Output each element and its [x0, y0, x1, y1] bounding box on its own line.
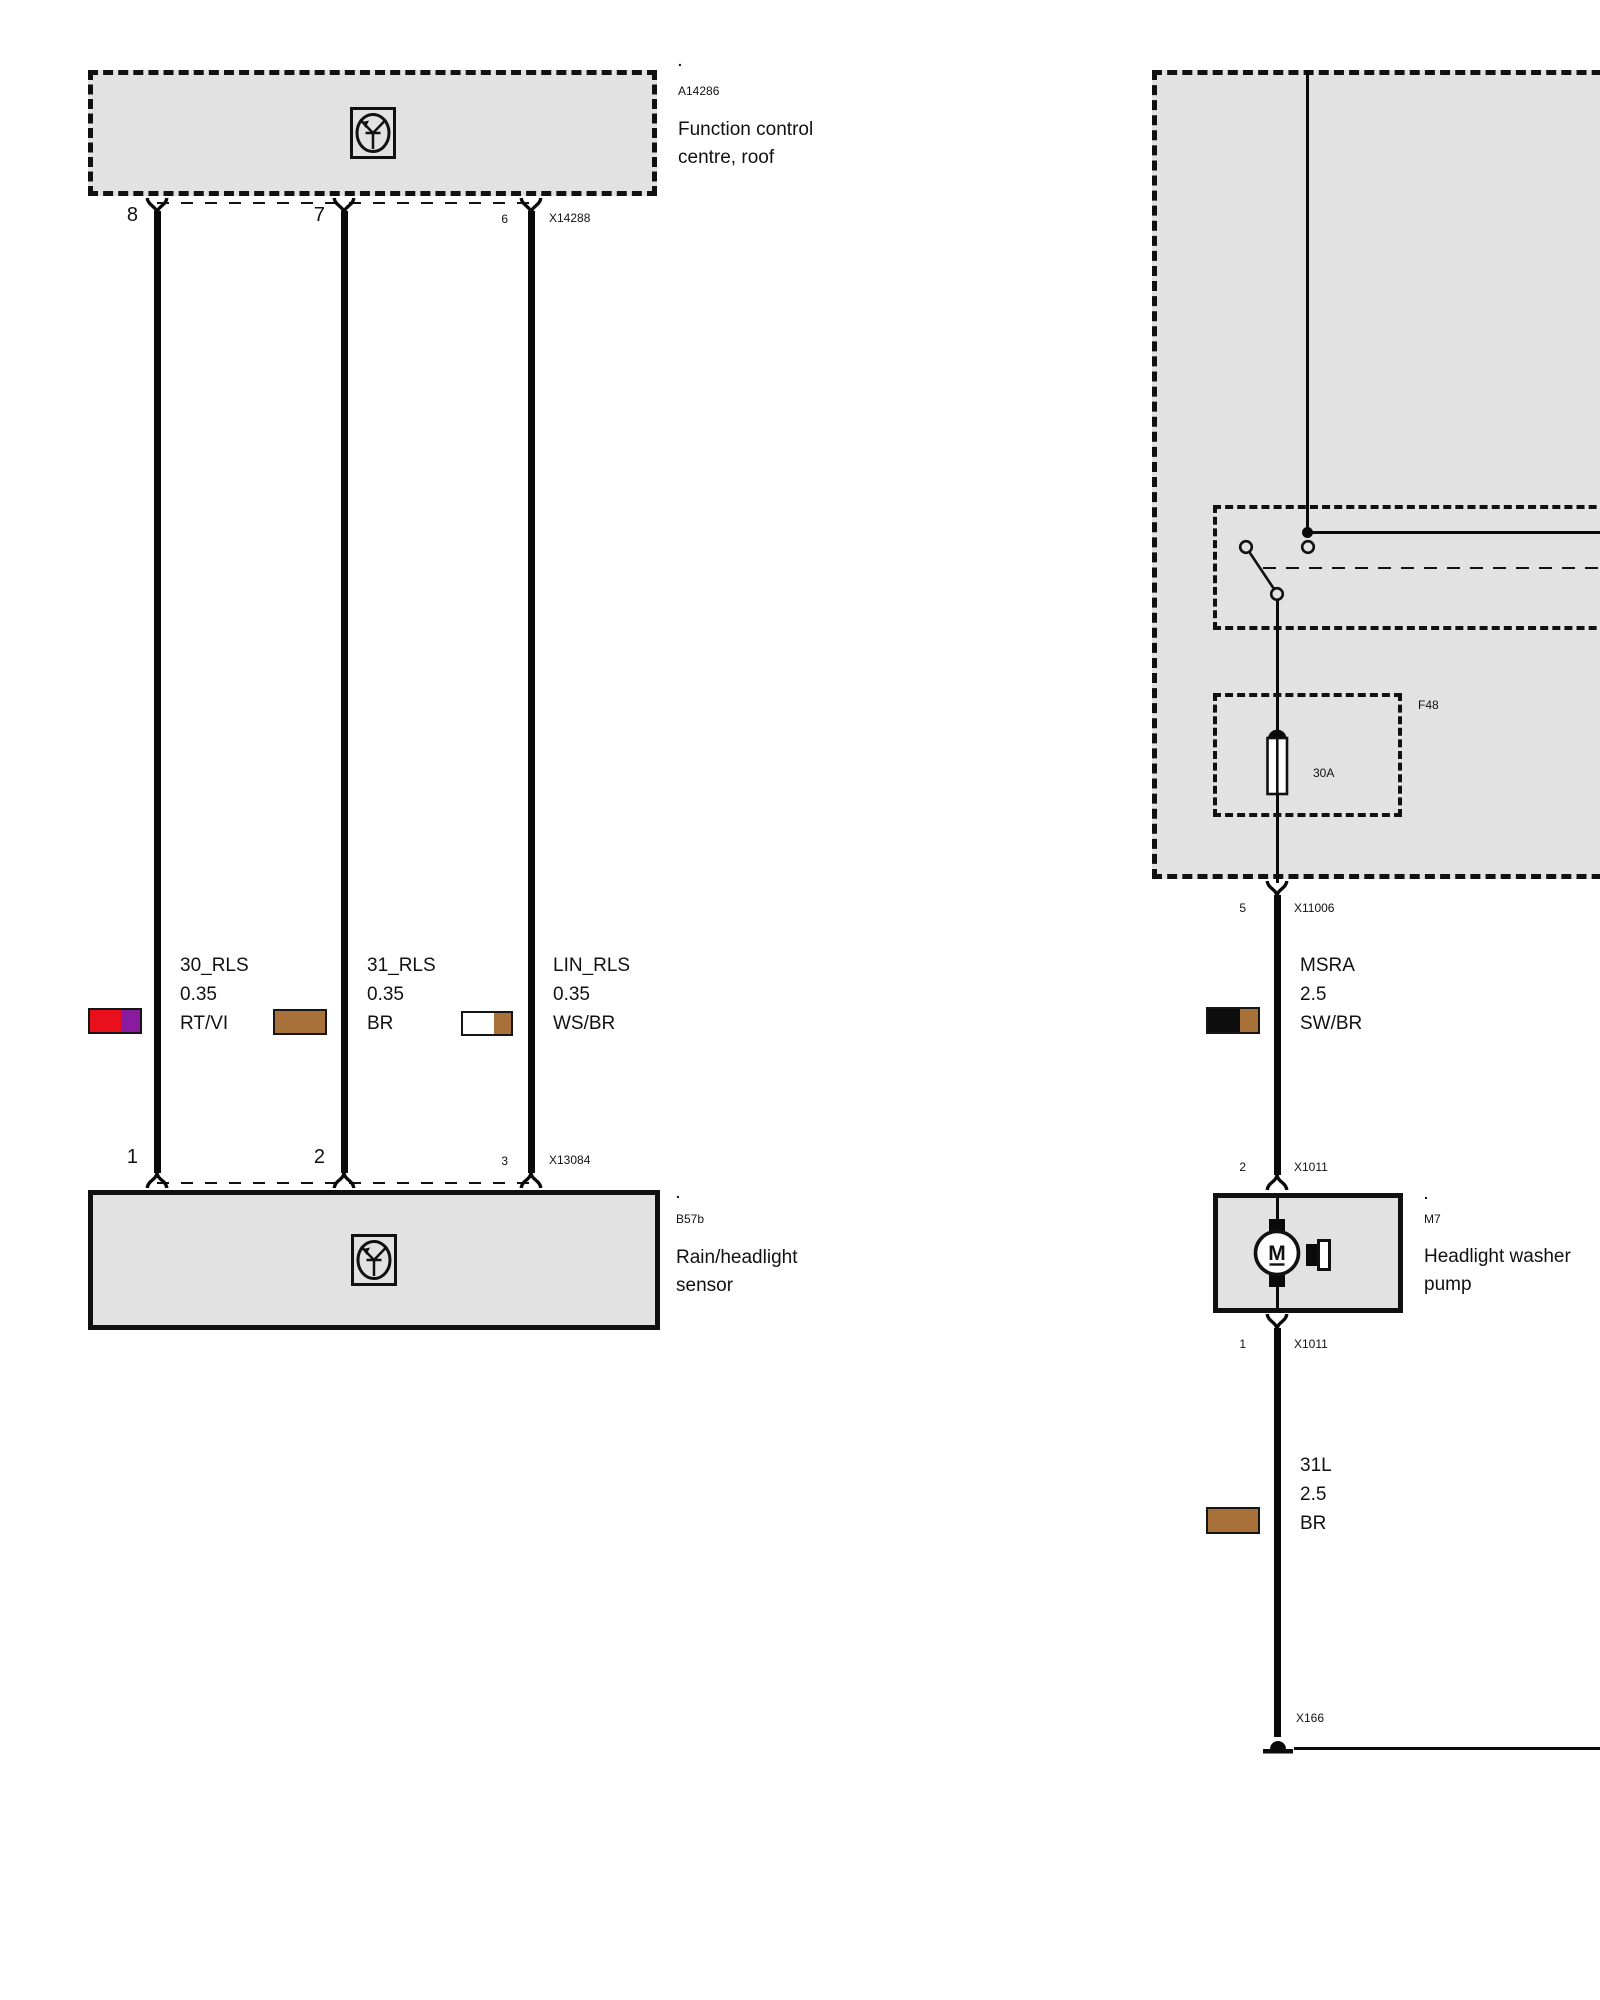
rain-sensor-marker: . [676, 1188, 680, 1198]
connector-x14288-id: X14288 [549, 211, 590, 225]
rain-sensor-id: B57b [676, 1212, 704, 1226]
fuse-id: F48 [1418, 698, 1439, 712]
washer-pump-marker: . [1424, 1189, 1428, 1199]
motor-letter: M [1268, 1242, 1286, 1265]
washer-pump-icon [1306, 1239, 1332, 1271]
light-sensor-icon [351, 1234, 397, 1286]
ground-icon [1262, 1736, 1294, 1754]
wiring-diagram: . A14286 Function control centre, roof 8… [0, 0, 1600, 2000]
pin-6: 6 [466, 212, 508, 226]
connector-socket-icon [1264, 1174, 1290, 1191]
wire-color-swatch-wsbr [461, 1011, 513, 1036]
pin-7: 7 [283, 204, 325, 226]
rain-sensor-label: Rain/headlight sensor [676, 1244, 846, 1300]
pin-8: 8 [96, 204, 138, 226]
connector-x11006-id: X11006 [1294, 901, 1334, 915]
relay-switch-icon [1235, 536, 1325, 606]
ground-bus-line [1294, 1747, 1600, 1750]
motor-icon: M [1253, 1217, 1301, 1289]
ground-x166-id: X166 [1296, 1711, 1324, 1725]
wire-spec-msra: MSRA 2.5 SW/BR [1300, 951, 1362, 1038]
fuse-icon [1258, 721, 1298, 799]
function-control-label: Function control centre, roof [678, 116, 873, 172]
pin-2: 2 [283, 1146, 325, 1168]
wire-31l [1274, 1328, 1281, 1737]
pin-3: 3 [466, 1154, 508, 1168]
pin-2-pump: 2 [1218, 1160, 1246, 1174]
function-control-id: A14286 [678, 84, 719, 98]
washer-pump-id: M7 [1424, 1212, 1441, 1226]
relay-linkage-line [1263, 567, 1600, 569]
light-sensor-icon [350, 107, 396, 159]
washer-pump-label: Headlight washer pump [1424, 1243, 1599, 1299]
pin-1-pump: 1 [1218, 1337, 1246, 1351]
wire-linrls [528, 211, 535, 1173]
connector-socket-icon [331, 1172, 357, 1189]
pin-1: 1 [96, 1146, 138, 1168]
connector-x1011-bottom-id: X1011 [1294, 1337, 1328, 1351]
wire-msra [1274, 895, 1281, 1175]
connector-socket-icon [518, 1172, 544, 1189]
wire-color-swatch-swbr [1206, 1007, 1260, 1034]
fuse-box [1213, 693, 1402, 817]
connector-x1011-top-id: X1011 [1294, 1160, 1328, 1174]
feed-wire [1306, 70, 1309, 533]
wire-30rls [154, 211, 161, 1173]
wire-spec-31rls: 31_RLS 0.35 BR [367, 951, 436, 1038]
function-control-marker: . [678, 56, 682, 66]
fuse-rating: 30A [1313, 766, 1334, 780]
wire-spec-30rls: 30_RLS 0.35 RT/VI [180, 951, 249, 1038]
wire-spec-31l: 31L 2.5 BR [1300, 1451, 1332, 1538]
pin-5: 5 [1218, 901, 1246, 915]
wire-spec-linrls: LIN_RLS 0.35 WS/BR [553, 951, 630, 1038]
wire-31rls [341, 211, 348, 1173]
connector-socket-icon [144, 1172, 170, 1189]
wire-color-swatch-br [273, 1009, 327, 1035]
wire-color-swatch-rtvi [88, 1008, 142, 1034]
wire-color-swatch-br-2 [1206, 1507, 1260, 1534]
connector-x13084-id: X13084 [549, 1153, 590, 1167]
